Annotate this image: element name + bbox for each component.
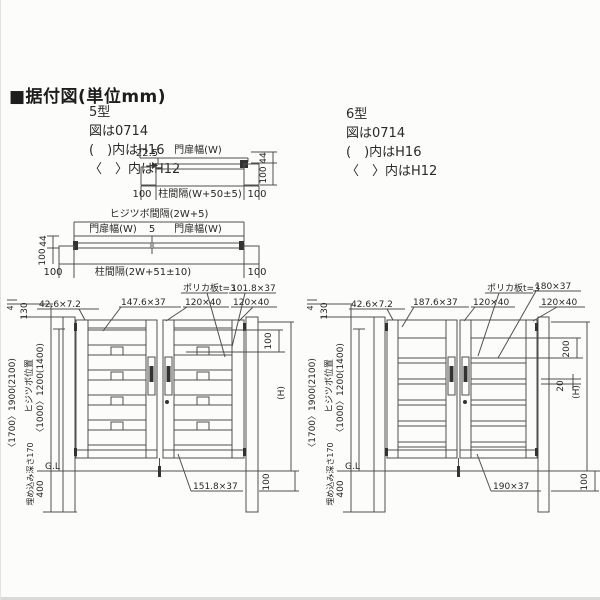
post-left [374, 317, 385, 512]
dim-leaf-width-right: 門扉幅(W) [174, 222, 222, 235]
dim-44: 44 [39, 235, 49, 247]
hinge-bottom-left [74, 448, 77, 456]
installation-drawing: 22.5 門扉幅(W) 44 100 100 [1, 0, 600, 600]
hinge-mark-right [239, 241, 244, 250]
dim-post-100-left: 100 [132, 189, 151, 200]
lock-dot [463, 400, 467, 404]
hinge-bottom-right [535, 448, 538, 456]
dim-leaf-width-left: 門扉幅(W) [89, 222, 137, 235]
dim-gate-height: (H) [572, 385, 582, 399]
dim-post-100-left: 100 [43, 267, 62, 278]
dim-offset-22-5: 22.5 [136, 148, 158, 159]
label-hinge-position: ヒジツボ位置 [23, 359, 35, 413]
dim-4: 4 [306, 305, 315, 310]
label-poly-panel: ポリカ板t=3 [487, 282, 540, 294]
hinge-mark [152, 162, 158, 169]
dim-slat-pitch: 100 [264, 332, 274, 349]
drop-rod [457, 466, 460, 477]
dim-ground-clearance: 100 [580, 473, 590, 490]
dim-post-100-right: 100 [247, 189, 266, 200]
dim-panel-pitch: 200 [562, 340, 572, 357]
post-right-plan [244, 246, 259, 264]
label-ground-level: G.L [345, 462, 360, 472]
elevation-type5: 4 130 〈1700〉1900(2100) ヒジツボ位置 〈1000〉1200… [6, 282, 299, 512]
hinge-bottom-left [385, 448, 388, 456]
post-left-plan [141, 167, 156, 185]
dim-leaf-width: 門扉幅(W) [174, 143, 222, 156]
louver-slats [88, 330, 232, 445]
dim-130: 130 [320, 302, 330, 319]
dim-44: 44 [259, 152, 269, 164]
hinge-top-left [385, 323, 388, 331]
dim-400: 400 [336, 480, 346, 497]
label-embed-depth: 埋め込み深さ170 [25, 442, 35, 505]
label-embed-depth: 埋め込み深さ170 [325, 442, 335, 505]
dim-ground-clearance: 100 [262, 473, 272, 490]
dim-hinge-span: ヒジツボ間隔(2W+5) [110, 208, 209, 220]
post-right [246, 317, 258, 512]
post-left [63, 317, 75, 512]
elevation-type6: 4 130 〈1700〉1900(2100) ヒジツボ位置 〈1000〉1200… [306, 282, 600, 512]
dim-post-height: 〈1700〉1900(2100) [307, 358, 318, 452]
dim-hinge-height: 〈1000〉1200(1400) [35, 343, 46, 437]
hinge-top-right [535, 323, 538, 331]
hinge-bottom-right [243, 448, 246, 456]
dim-130: 130 [20, 302, 30, 319]
post-left-plan [59, 246, 74, 264]
dim-post-100-right: 100 [247, 267, 266, 278]
dim-post-spacing: 柱間隔(2W+51±10) [95, 265, 191, 278]
dim-rail-height: 20 [556, 380, 566, 392]
hinge-top-left [74, 323, 77, 331]
dim-hinge-height: 〈1000〉1200(1400) [335, 343, 346, 437]
installation-diagram-page: ■据付図(単位mm) 5型 図は0714 ( )内はH16 〈 〉内はH12 6… [0, 0, 600, 600]
drop-rod [158, 466, 161, 477]
dim-4: 4 [6, 305, 15, 310]
post-right [538, 317, 549, 512]
dim-100: 100 [38, 248, 48, 265]
gate-leaf-right [460, 320, 537, 458]
dim-post-spacing: 柱間隔(W+50±5) [158, 187, 242, 200]
dim-center-gap: 5 [149, 224, 155, 235]
lock-dot [165, 400, 169, 404]
plan-view-double: ヒジツボ間隔(2W+5) 門扉幅(W) 5 門扉幅(W) 44 100 [38, 208, 267, 278]
dim-post-height: 〈1700〉1900(2100) [7, 358, 18, 452]
dim-100: 100 [259, 166, 269, 183]
plan-view-single: 22.5 門扉幅(W) 44 100 100 [132, 143, 277, 200]
label-poly-panel: ポリカ板t=3 [183, 282, 236, 294]
label-ground-level: G.L [45, 462, 60, 472]
dim-400: 400 [36, 480, 46, 497]
label-hinge-position: ヒジツボ位置 [323, 359, 335, 413]
dim-gate-height: (H) [277, 386, 287, 400]
